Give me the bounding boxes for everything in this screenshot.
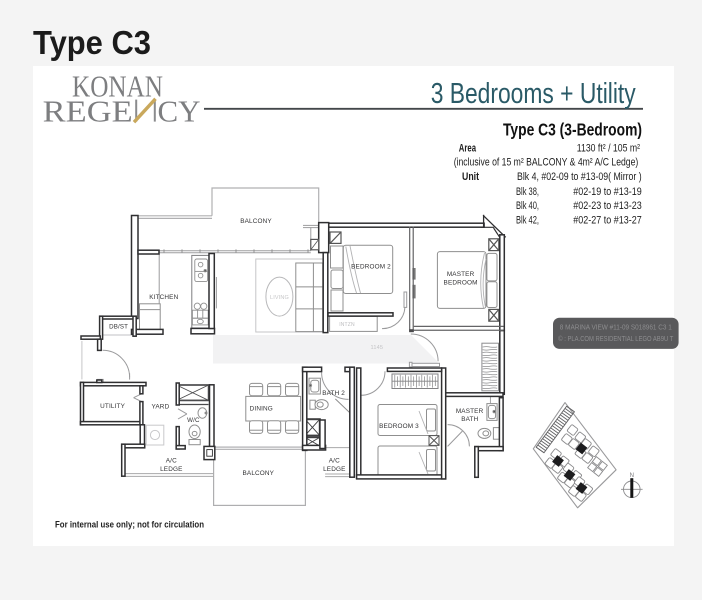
svg-text:BATH 2: BATH 2 bbox=[322, 390, 345, 397]
svg-text:Blk 38,: Blk 38, bbox=[516, 186, 539, 198]
svg-text:© : PLA.COM RESIDENTIAL LEGO A: © : PLA.COM RESIDENTIAL LEGO AB9U T bbox=[558, 334, 673, 343]
svg-text:3 Bedrooms + Utility: 3 Bedrooms + Utility bbox=[431, 78, 636, 110]
svg-text:YARD: YARD bbox=[151, 404, 169, 411]
svg-text:1145: 1145 bbox=[370, 345, 383, 351]
svg-text:#02-23 to #13-23: #02-23 to #13-23 bbox=[573, 200, 641, 212]
svg-text:Unit: Unit bbox=[462, 171, 479, 183]
svg-text:BEDROOM 3: BEDROOM 3 bbox=[379, 423, 419, 430]
svg-text:KITCHEN: KITCHEN bbox=[149, 294, 178, 301]
svg-text:BALCONY: BALCONY bbox=[240, 218, 272, 225]
svg-text:MASTER: MASTER bbox=[447, 271, 475, 278]
svg-text:Blk 40,: Blk 40, bbox=[516, 200, 539, 212]
svg-text:#02-19 to #13-19: #02-19 to #13-19 bbox=[573, 186, 641, 198]
svg-text:Blk 4, #02-09 to #13-09( Mirro: Blk 4, #02-09 to #13-09( Mirror ) bbox=[517, 171, 642, 183]
svg-text:LEDGE: LEDGE bbox=[323, 466, 345, 473]
svg-text:BALCONY: BALCONY bbox=[243, 470, 275, 477]
svg-text:LIVING: LIVING bbox=[270, 295, 289, 301]
svg-text:BEDROOM 2: BEDROOM 2 bbox=[351, 264, 391, 271]
svg-text:For internal use only; not for: For internal use only; not for circulati… bbox=[55, 520, 204, 531]
svg-text:A/C: A/C bbox=[329, 458, 340, 465]
svg-text:LEDGE: LEDGE bbox=[160, 466, 182, 473]
svg-text:DB/ST: DB/ST bbox=[109, 323, 128, 330]
svg-text:BEDROOM: BEDROOM bbox=[444, 279, 478, 286]
svg-text:Type C3: Type C3 bbox=[33, 24, 151, 61]
svg-text:DINING: DINING bbox=[250, 406, 273, 413]
svg-text:BATH: BATH bbox=[461, 416, 478, 423]
svg-text:8 MARINA VIEW #11-09 S018961 C: 8 MARINA VIEW #11-09 S018961 C3 1 bbox=[560, 323, 672, 332]
svg-text:Area: Area bbox=[459, 142, 476, 154]
svg-text:Blk 42,: Blk 42, bbox=[516, 215, 539, 227]
svg-text:Type C3 (3-Bedroom): Type C3 (3-Bedroom) bbox=[503, 120, 642, 140]
svg-text:UTILITY: UTILITY bbox=[100, 403, 125, 410]
svg-text:INTZN: INTZN bbox=[339, 322, 355, 328]
svg-text:REGE: REGE bbox=[43, 93, 133, 128]
svg-text:(inclusive of 15 m² BALCONY &: (inclusive of 15 m² BALCONY & 4m² A/C Le… bbox=[454, 157, 639, 169]
svg-text:#02-27 to #13-27: #02-27 to #13-27 bbox=[573, 215, 641, 227]
svg-text:CY: CY bbox=[158, 93, 201, 128]
svg-text:MASTER: MASTER bbox=[456, 408, 484, 415]
svg-text:W/C: W/C bbox=[187, 417, 200, 424]
svg-text:A/C: A/C bbox=[166, 458, 177, 465]
svg-text:N: N bbox=[630, 473, 634, 479]
svg-text:1130 ft² / 105 m²: 1130 ft² / 105 m² bbox=[577, 142, 641, 154]
